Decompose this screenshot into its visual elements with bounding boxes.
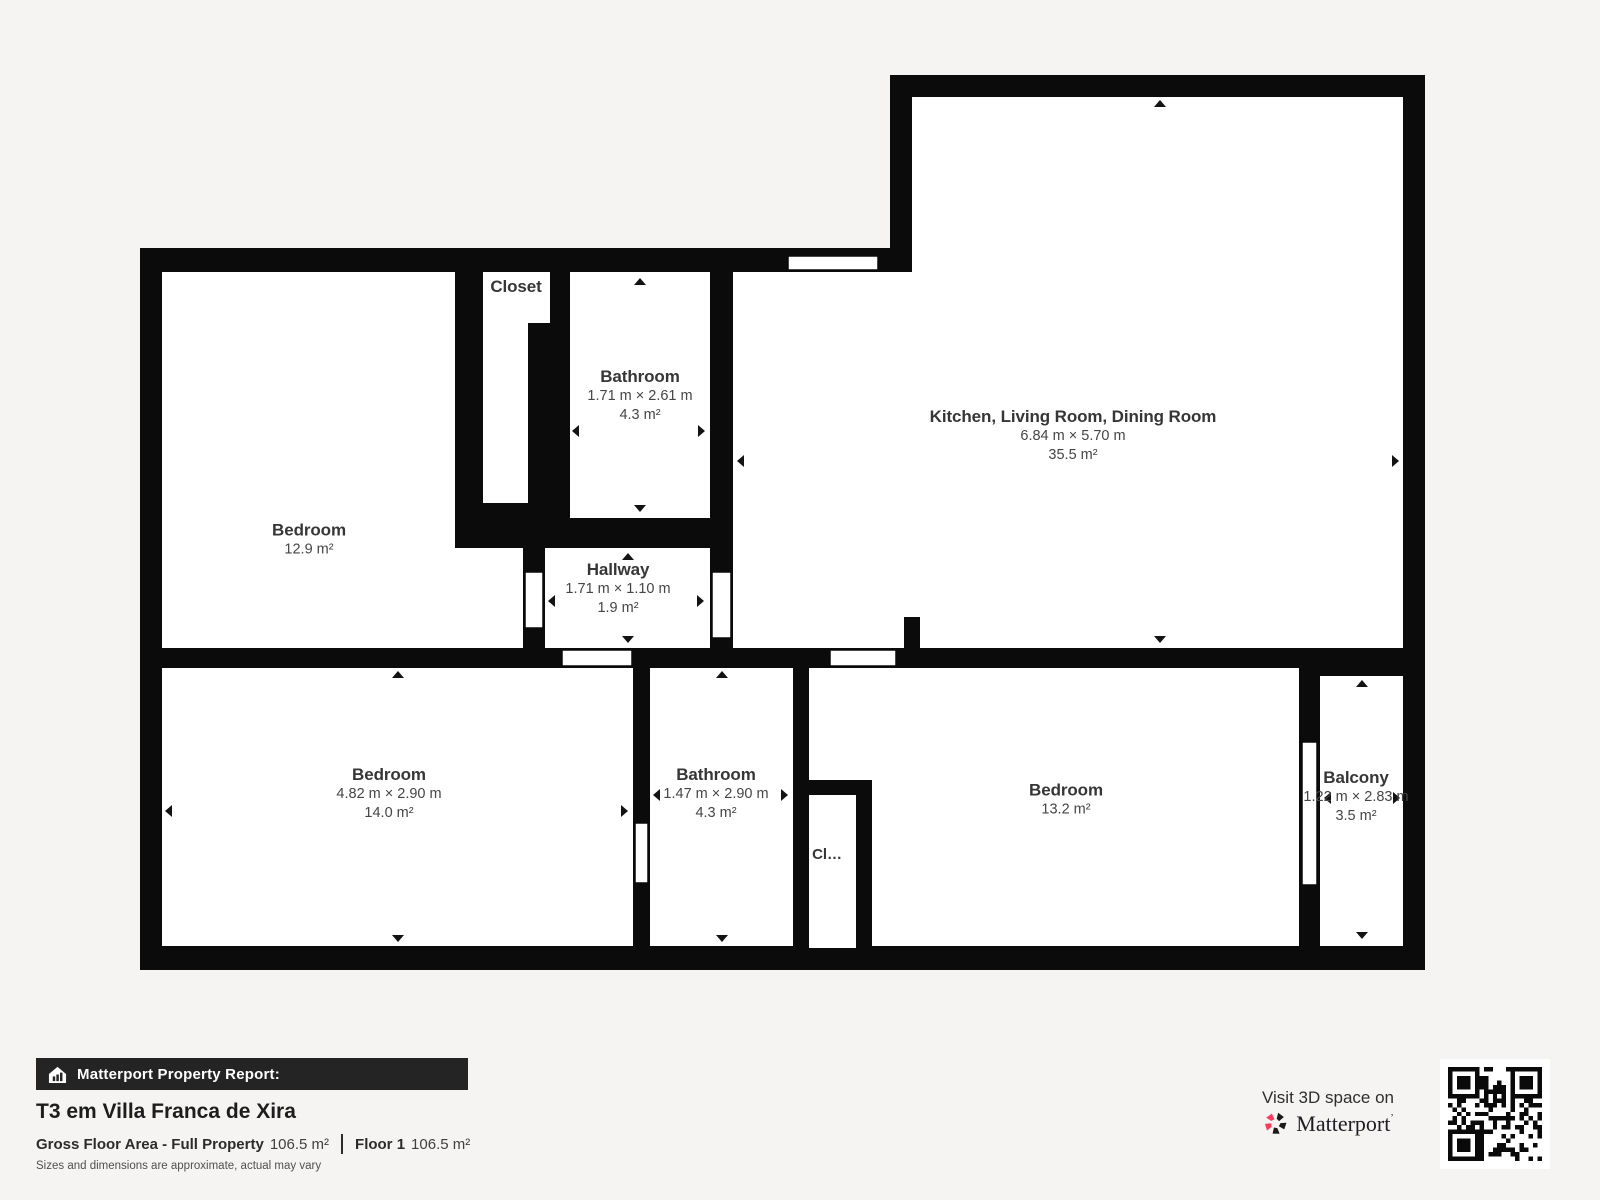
- dim-arrow-left-icon: [653, 789, 660, 801]
- room-floor-bathroom-t: [570, 272, 713, 518]
- door-kitchen-bedroom: [830, 650, 896, 666]
- floor-plan: [0, 0, 1600, 1010]
- dim-arrow-left-icon: [548, 595, 555, 607]
- gross-area-label: Gross Floor Area - Full Property: [36, 1136, 264, 1153]
- room-floor-bedroom-bl: [162, 668, 633, 948]
- divider: [341, 1134, 343, 1154]
- room-floor-bathroom-b: [650, 668, 793, 948]
- dim-arrow-up-icon: [1356, 680, 1368, 687]
- visit-3d-text: Visit 3D space on: [1240, 1088, 1416, 1108]
- property-title: T3 em Villa Franca de Xira: [36, 1100, 296, 1124]
- dim-arrow-down-icon: [1154, 636, 1166, 643]
- room-floor-balcony: [1320, 676, 1405, 948]
- floor-label: Floor 1: [355, 1136, 405, 1153]
- dim-arrow-up-icon: [622, 553, 634, 560]
- door-hallway-kitchen: [712, 572, 731, 638]
- room-floor-hallway: [545, 548, 710, 648]
- floor-value: 106.5 m²: [411, 1136, 470, 1153]
- dim-arrow-down-icon: [716, 935, 728, 942]
- dim-arrow-right-icon: [1392, 455, 1399, 467]
- door-bedroom-bathroom: [635, 823, 648, 883]
- dim-arrow-down-icon: [392, 935, 404, 942]
- dim-arrow-right-icon: [1393, 792, 1400, 804]
- dim-arrow-up-icon: [716, 671, 728, 678]
- dim-arrow-down-icon: [1356, 932, 1368, 939]
- door-hallway-bedroom: [525, 572, 543, 628]
- matterport-brand: Matterport’: [1240, 1110, 1416, 1137]
- matterport-logo-icon: [1262, 1110, 1289, 1137]
- gross-area-value: 106.5 m²: [270, 1136, 329, 1153]
- dim-arrow-up-icon: [634, 278, 646, 285]
- dim-arrow-left-icon: [1324, 792, 1331, 804]
- dim-arrow-right-icon: [698, 425, 705, 437]
- report-bar: Matterport Property Report:: [36, 1058, 468, 1090]
- dim-arrow-down-icon: [634, 505, 646, 512]
- room-floor-bedroom-br: [809, 668, 1299, 948]
- room-floor-closet-b: [809, 795, 856, 948]
- dim-arrow-down-icon: [622, 636, 634, 643]
- qr-code: [1440, 1059, 1550, 1169]
- dim-arrow-left-icon: [737, 455, 744, 467]
- trademark-tick: ’: [1390, 1113, 1393, 1124]
- matterport-wordmark: Matterport’: [1296, 1111, 1393, 1137]
- disclaimer-text: Sizes and dimensions are approximate, ac…: [36, 1160, 321, 1172]
- report-bar-label: Matterport Property Report:: [77, 1066, 280, 1083]
- dim-arrow-left-icon: [572, 425, 579, 437]
- room-floor-kitchen-1: [912, 97, 1405, 652]
- room-floor-kitchen-2: [733, 272, 912, 652]
- dim-arrow-right-icon: [697, 595, 704, 607]
- dim-arrow-right-icon: [621, 805, 628, 817]
- dim-arrow-right-icon: [781, 789, 788, 801]
- area-summary: Gross Floor Area - Full Property 106.5 m…: [36, 1134, 470, 1154]
- house-chart-icon: [48, 1065, 67, 1084]
- dim-arrow-up-icon: [392, 671, 404, 678]
- rooms-layer: [162, 97, 1405, 948]
- dim-arrow-left-icon: [165, 805, 172, 817]
- window-balcony: [1302, 742, 1317, 885]
- window-kitchen-top: [788, 256, 878, 270]
- dim-arrow-up-icon: [1154, 100, 1166, 107]
- door-hallway-bottom: [562, 650, 632, 666]
- matterport-floorplan-report: Bedroom 12.9 m² Closet Bathroom 1.71 m ×…: [0, 0, 1600, 1200]
